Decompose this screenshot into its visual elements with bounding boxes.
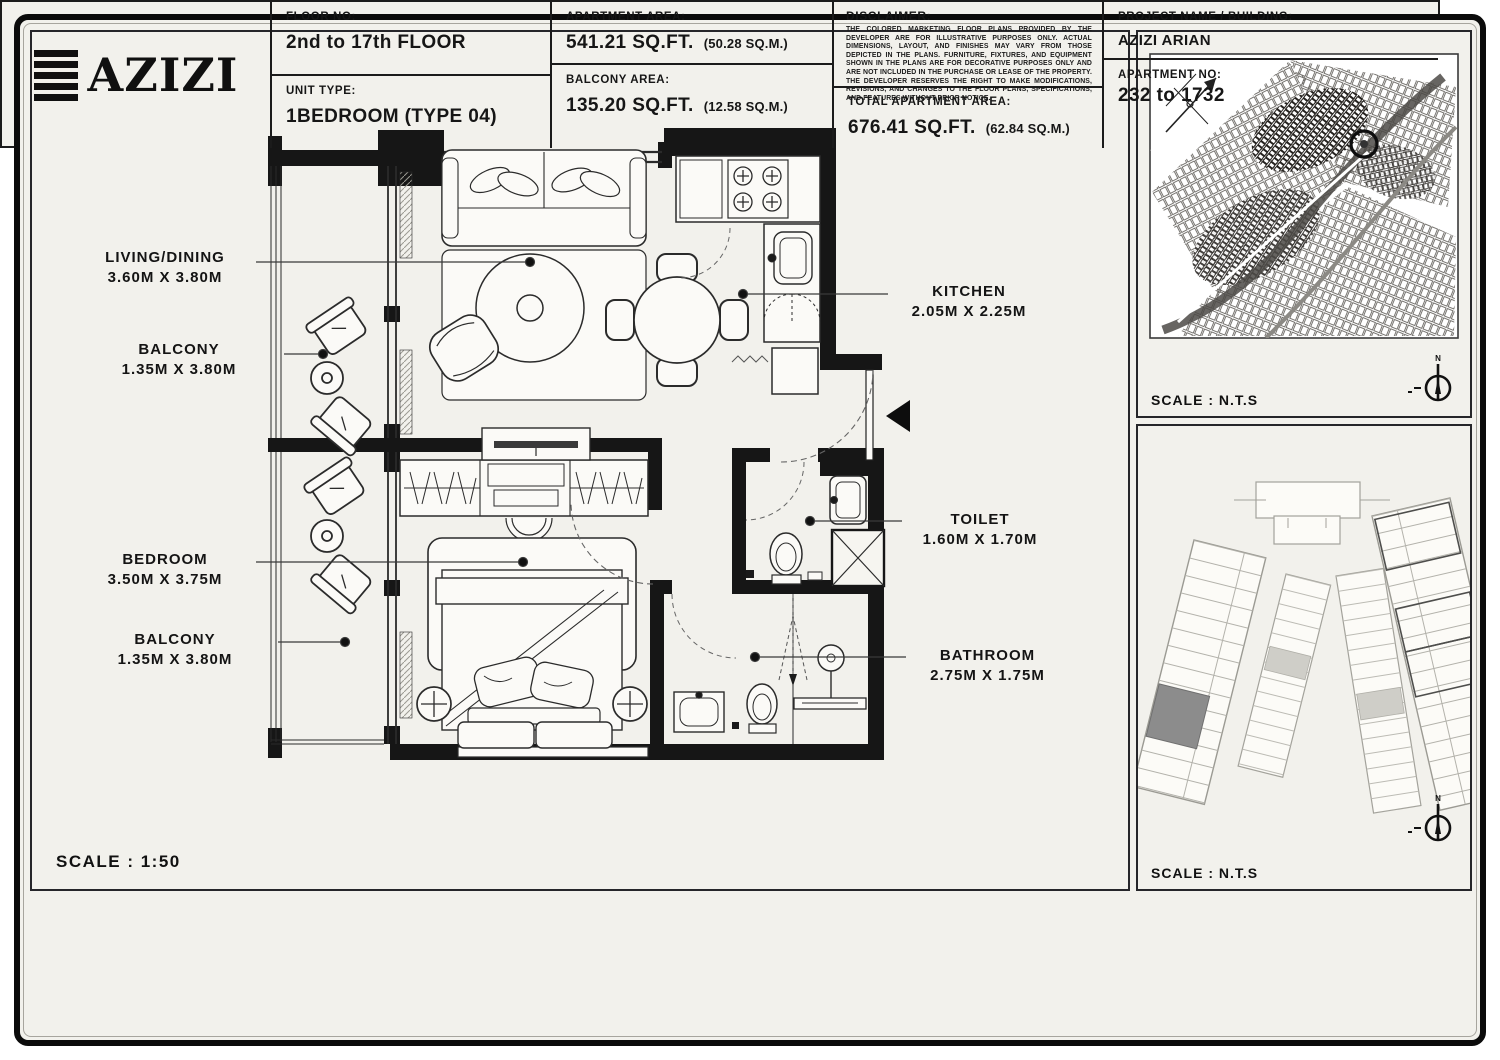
project-column: PROJECT NAME / BUILDING: AZIZI ARIAN APA… (1102, 2, 1438, 148)
room-name: BEDROOM (122, 551, 207, 568)
total-area-value: 676.41 SQ.FT.(62.84 SQ.M.) (848, 117, 1088, 139)
disclaimer-column: DISCLAIMER: THE COLORED MARKETING FLOOR … (832, 2, 1102, 148)
unit-type-cell: UNIT TYPE: 1BEDROOM (TYPE 04) (272, 74, 550, 144)
room-name: BALCONY (134, 631, 215, 648)
svg-text:N: N (1435, 354, 1441, 363)
balcony-area-cell: BALCONY AREA: 135.20 SQ.FT.(12.58 SQ.M.) (552, 63, 832, 133)
svg-text:N: N (1435, 794, 1441, 803)
areas-column: APARTMENT AREA: 541.21 SQ.FT.(50.28 SQ.M… (550, 2, 832, 148)
map-scale-label: SCALE : N.T.S (1151, 392, 1258, 408)
room-dims: 1.35M X 3.80M (118, 651, 233, 668)
project-name-label: PROJECT NAME / BUILDING: (1118, 11, 1424, 23)
building-outline (1138, 482, 1470, 813)
label-living-dining: LIVING/DINING 3.60M X 3.80M (70, 248, 260, 288)
label-balcony-top: BALCONY 1.35M X 3.80M (84, 340, 274, 380)
floorplan-panel: LIVING/DINING 3.60M X 3.80M BALCONY 1.35… (30, 30, 1130, 891)
plan-scale-label: SCALE : 1:50 (56, 852, 181, 872)
balcony-furniture-top (305, 296, 377, 457)
balcony-area-label: BALCONY AREA: (566, 74, 818, 86)
bathroom-fixtures (672, 594, 866, 744)
azizi-bars-icon (34, 50, 78, 101)
sofa (442, 150, 646, 246)
floor-no-cell: FLOOR NO: 2nd to 17th FLOOR (272, 2, 550, 74)
room-name: TOILET (950, 511, 1009, 528)
room-name: BATHROOM (940, 647, 1035, 664)
tv-console (482, 428, 590, 460)
apartment-area-label: APARTMENT AREA: (566, 11, 818, 23)
label-kitchen: KITCHEN 2.05M X 2.25M (874, 282, 1064, 322)
room-dims: 2.05M X 2.25M (912, 303, 1027, 320)
floorplan-drawing (32, 32, 1128, 889)
disclaimer-text: THE COLORED MARKETING FLOOR PLANS PROVID… (846, 26, 1092, 103)
label-balcony-bottom: BALCONY 1.35M X 3.80M (80, 630, 270, 670)
room-dims: 3.60M X 3.80M (108, 269, 223, 286)
title-block: AZIZI FLOOR NO: 2nd to 17th FLOOR UNIT T… (0, 0, 1440, 148)
label-bathroom: BATHROOM 2.75M X 1.75M (890, 646, 1085, 686)
project-name-cell: PROJECT NAME / BUILDING: AZIZI ARIAN (1104, 2, 1438, 58)
apartment-no-value: 232 to 1732 (1118, 85, 1424, 107)
total-area-cell: TOTAL APARTMENT AREA: 676.41 SQ.FT.(62.8… (834, 86, 1102, 148)
project-name-value: AZIZI ARIAN (1118, 32, 1424, 49)
bed (428, 538, 636, 748)
balcony-area-metric: (12.58 SQ.M.) (704, 99, 788, 114)
floor-no-value: 2nd to 17th FLOOR (286, 32, 536, 54)
floor-no-label: FLOOR NO: (286, 11, 536, 23)
room-name: KITCHEN (932, 283, 1006, 300)
disclaimer-label: DISCLAIMER: (846, 9, 1092, 23)
shaft (832, 530, 884, 586)
room-dims: 1.35M X 3.80M (122, 361, 237, 378)
room-name: LIVING/DINING (105, 249, 225, 266)
unit-type-label: UNIT TYPE: (286, 85, 536, 97)
key-plan-drawing: N (1138, 426, 1470, 889)
label-toilet: TOILET 1.60M X 1.70M (890, 510, 1070, 550)
apartment-area-value: 541.21 SQ.FT.(50.28 SQ.M.) (566, 32, 818, 54)
balcony-furniture-bottom (303, 456, 377, 615)
disclaimer-cell: DISCLAIMER: THE COLORED MARKETING FLOOR … (834, 2, 1102, 86)
room-name: BALCONY (138, 341, 219, 358)
north-compass-icon: N (1408, 354, 1450, 400)
floor-unit-column: FLOOR NO: 2nd to 17th FLOOR UNIT TYPE: 1… (270, 2, 550, 148)
label-bedroom: BEDROOM 3.50M X 3.75M (70, 550, 260, 590)
wardrobe (400, 460, 648, 516)
key-plan-scale-label: SCALE : N.T.S (1151, 865, 1258, 881)
total-area-metric: (62.84 SQ.M.) (986, 121, 1070, 136)
entry-arrow-icon (886, 400, 910, 432)
unit-type-value: 1BEDROOM (TYPE 04) (286, 106, 536, 128)
room-dims: 1.60M X 1.70M (923, 531, 1038, 548)
apartment-area-metric: (50.28 SQ.M.) (704, 36, 788, 51)
room-dims: 2.75M X 1.75M (930, 667, 1045, 684)
key-plan-panel: N SCALE : N.T.S (1136, 424, 1472, 891)
apartment-no-cell: APARTMENT NO: 232 to 1732 (1104, 58, 1438, 128)
room-dims: 3.50M X 3.75M (108, 571, 223, 588)
balcony-area-value: 135.20 SQ.FT.(12.58 SQ.M.) (566, 95, 818, 117)
logo-column: AZIZI (2, 2, 270, 148)
apartment-area-cell: APARTMENT AREA: 541.21 SQ.FT.(50.28 SQ.M… (552, 2, 832, 63)
total-area-label: TOTAL APARTMENT AREA: (848, 96, 1088, 108)
apartment-no-label: APARTMENT NO: (1118, 69, 1424, 81)
azizi-logo: AZIZI (88, 48, 239, 102)
